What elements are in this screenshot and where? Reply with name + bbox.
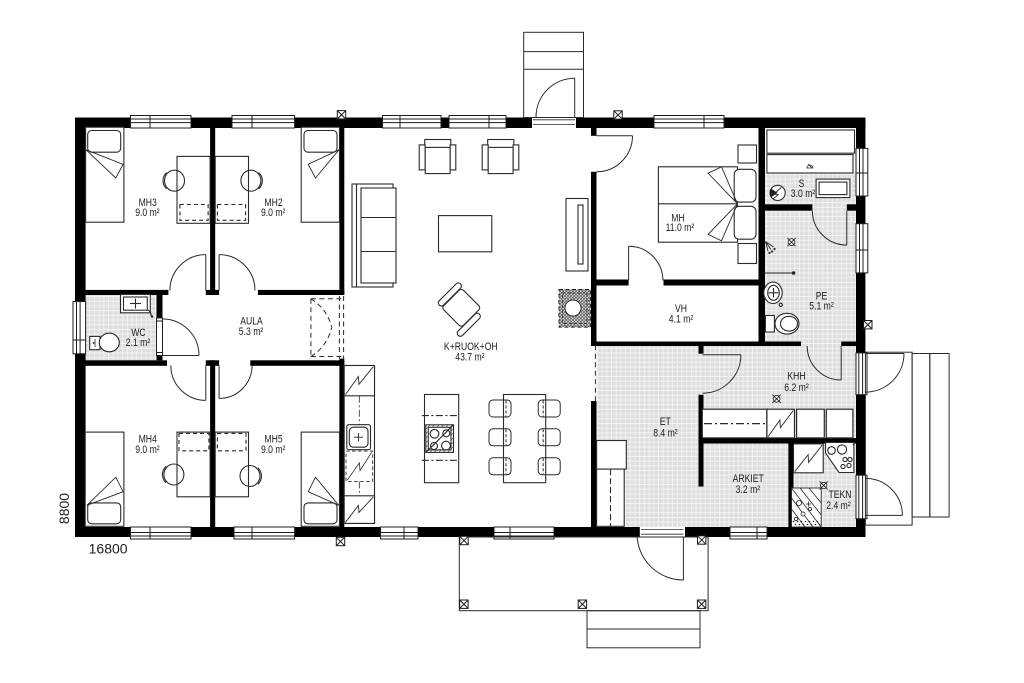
svg-text:9.0 m²: 9.0 m² <box>135 207 160 219</box>
svg-text:4.1 m²: 4.1 m² <box>669 313 694 325</box>
svg-text:9.0 m²: 9.0 m² <box>261 207 286 219</box>
svg-text:3.2 m²: 3.2 m² <box>736 484 761 496</box>
svg-text:16800: 16800 <box>89 541 128 557</box>
svg-text:KHH: KHH <box>787 371 805 383</box>
svg-text:5.1 m²: 5.1 m² <box>809 301 834 313</box>
svg-text:2.1 m²: 2.1 m² <box>126 337 151 349</box>
svg-text:9.0 m²: 9.0 m² <box>261 444 286 456</box>
svg-text:2.4 m²: 2.4 m² <box>826 500 851 512</box>
svg-text:ET: ET <box>660 416 671 428</box>
svg-text:3.0 m²: 3.0 m² <box>791 188 816 200</box>
svg-text:43.7 m²: 43.7 m² <box>455 352 485 364</box>
svg-text:8.4 m²: 8.4 m² <box>653 428 678 440</box>
svg-text:11.0 m²: 11.0 m² <box>666 222 695 234</box>
svg-text:9.0 m²: 9.0 m² <box>135 444 160 456</box>
svg-text:5.3 m²: 5.3 m² <box>239 326 264 338</box>
svg-text:6.2 m²: 6.2 m² <box>784 382 809 394</box>
svg-text:8800: 8800 <box>56 493 72 524</box>
